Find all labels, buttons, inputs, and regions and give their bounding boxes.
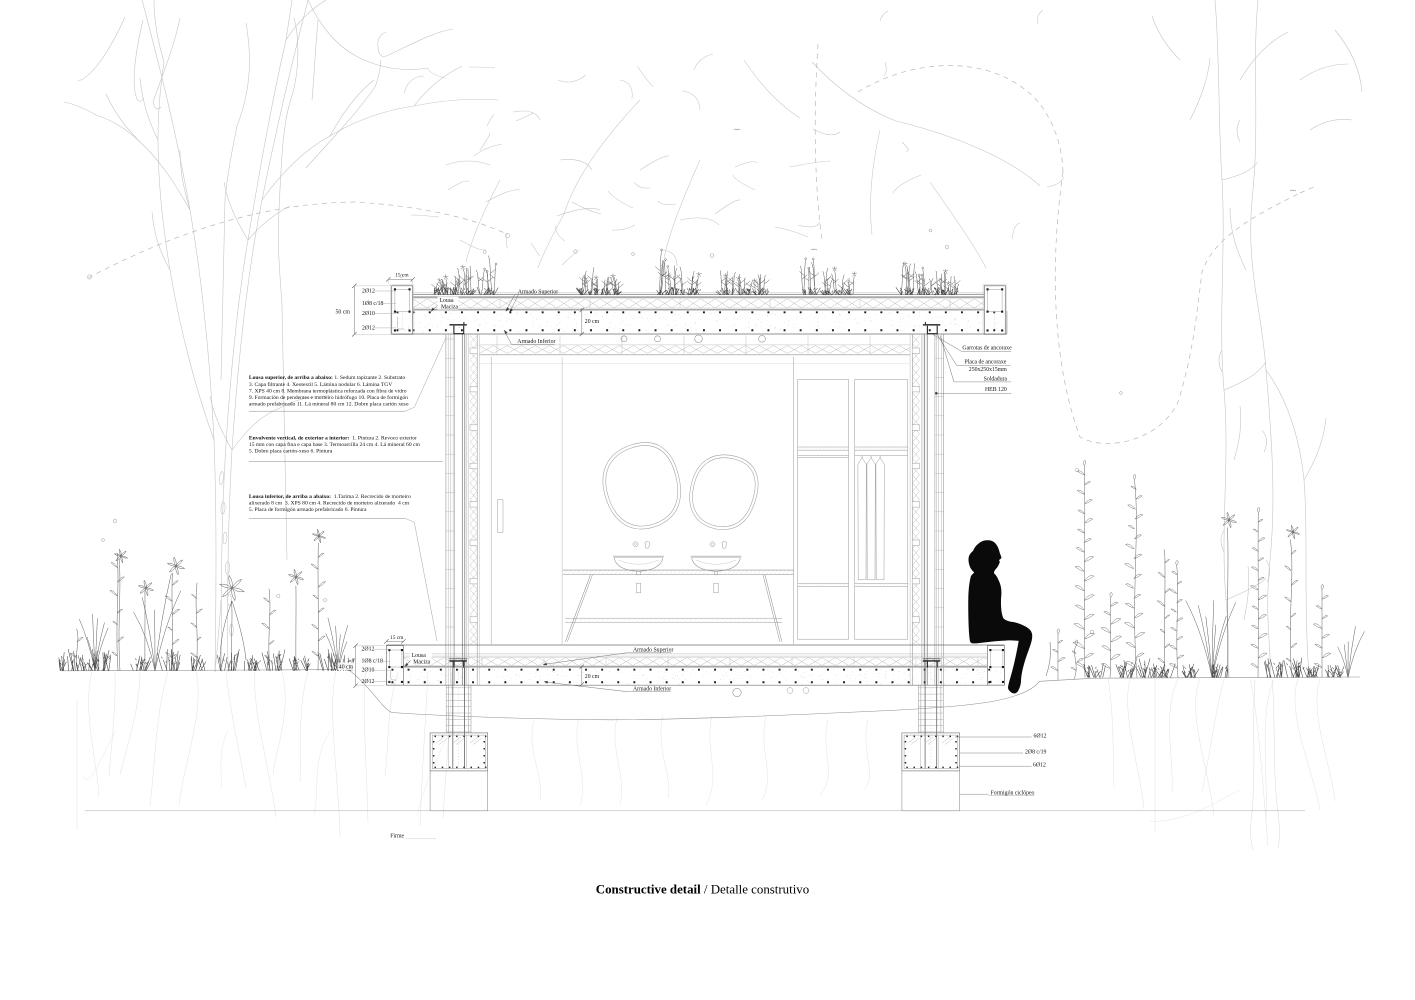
svg-text:6Ø12: 6Ø12 [1033,763,1046,769]
svg-text:2Ø8 c/19: 2Ø8 c/19 [1025,749,1047,755]
svg-text:2Ø10: 2Ø10 [362,668,375,674]
svg-text:Maciza: Maciza [413,659,430,665]
svg-text:20 cm: 20 cm [585,674,600,680]
svg-text:7. XPS 40 cm 8. Membrana termo: 7. XPS 40 cm 8. Membrana termoplástica r… [249,387,407,394]
svg-text:50 cm: 50 cm [336,309,351,315]
svg-text:2Ø12: 2Ø12 [362,679,375,685]
svg-text:HEB 120: HEB 120 [985,387,1007,393]
svg-text:Garrotas de ancoraxe: Garrotas de ancoraxe [962,346,1012,352]
svg-text:40 cm: 40 cm [339,664,354,670]
svg-text:Constructive detail / Detalle: Constructive detail / Detalle construtiv… [596,882,809,896]
svg-text:20 cm: 20 cm [585,319,600,325]
svg-text:250x250x15mm: 250x250x15mm [969,367,1007,373]
svg-text:Placa de ancoraxe: Placa de ancoraxe [965,360,1007,366]
svg-text:2Ø10: 2Ø10 [362,311,375,317]
svg-text:5. Placa de formigón armado pr: 5. Placa de formigón armado prefabricado… [249,506,367,513]
svg-text:15 cm: 15 cm [395,273,409,279]
svg-text:Lousa: Lousa [439,298,454,304]
svg-text:5. Dobre placa cartón-xeso 6.: 5. Dobre placa cartón-xeso 6. Pintura [249,449,333,455]
svg-text:1Ø8 c/18: 1Ø8 c/18 [362,659,384,665]
svg-text:Lousa inferior, de arriba a ab: Lousa inferior, de arriba a abaixo: 1.Ta… [249,494,411,500]
svg-text:3. Capa filtrante 4. Xeotextil: 3. Capa filtrante 4. Xeotextil 5. Lámina… [249,381,392,388]
svg-text:Firme: Firme [390,833,404,839]
svg-text:Lousa superior, de arriba a ab: Lousa superior, de arriba a abaixo: 1. S… [249,375,405,381]
svg-text:Maciza: Maciza [441,305,458,311]
svg-text:15 cm: 15 cm [390,635,404,641]
svg-text:Lousa: Lousa [412,653,427,659]
svg-text:9. Formación de pendentes e mo: 9. Formación de pendentes e morteiro hid… [249,394,408,401]
svg-text:armado prefabricado 11. Lá min: armado prefabricado 11. Lá mineral 80 cm… [249,400,409,407]
svg-text:2Ø12: 2Ø12 [362,325,375,331]
svg-text:6Ø12: 6Ø12 [1034,734,1047,740]
svg-text:Armado Inferior: Armado Inferior [633,685,671,692]
svg-text:2Ø12: 2Ø12 [362,288,375,294]
svg-text:2Ø12: 2Ø12 [362,647,375,653]
svg-text:Envolvente vertical, de exteri: Envolvente vertical, de exterior a inter… [249,435,417,441]
svg-text:Armado Inferior: Armado Inferior [517,338,555,345]
svg-text:alixerado 8 cm 3. XPS 80 cm 4: alixerado 8 cm 3. XPS 80 cm 4. Recrecido… [249,500,410,506]
svg-text:15 mm con capa fina e capa bas: 15 mm con capa fina e capa base 3. Termo… [249,441,421,448]
svg-text:1Ø8 c/18: 1Ø8 c/18 [362,301,384,307]
